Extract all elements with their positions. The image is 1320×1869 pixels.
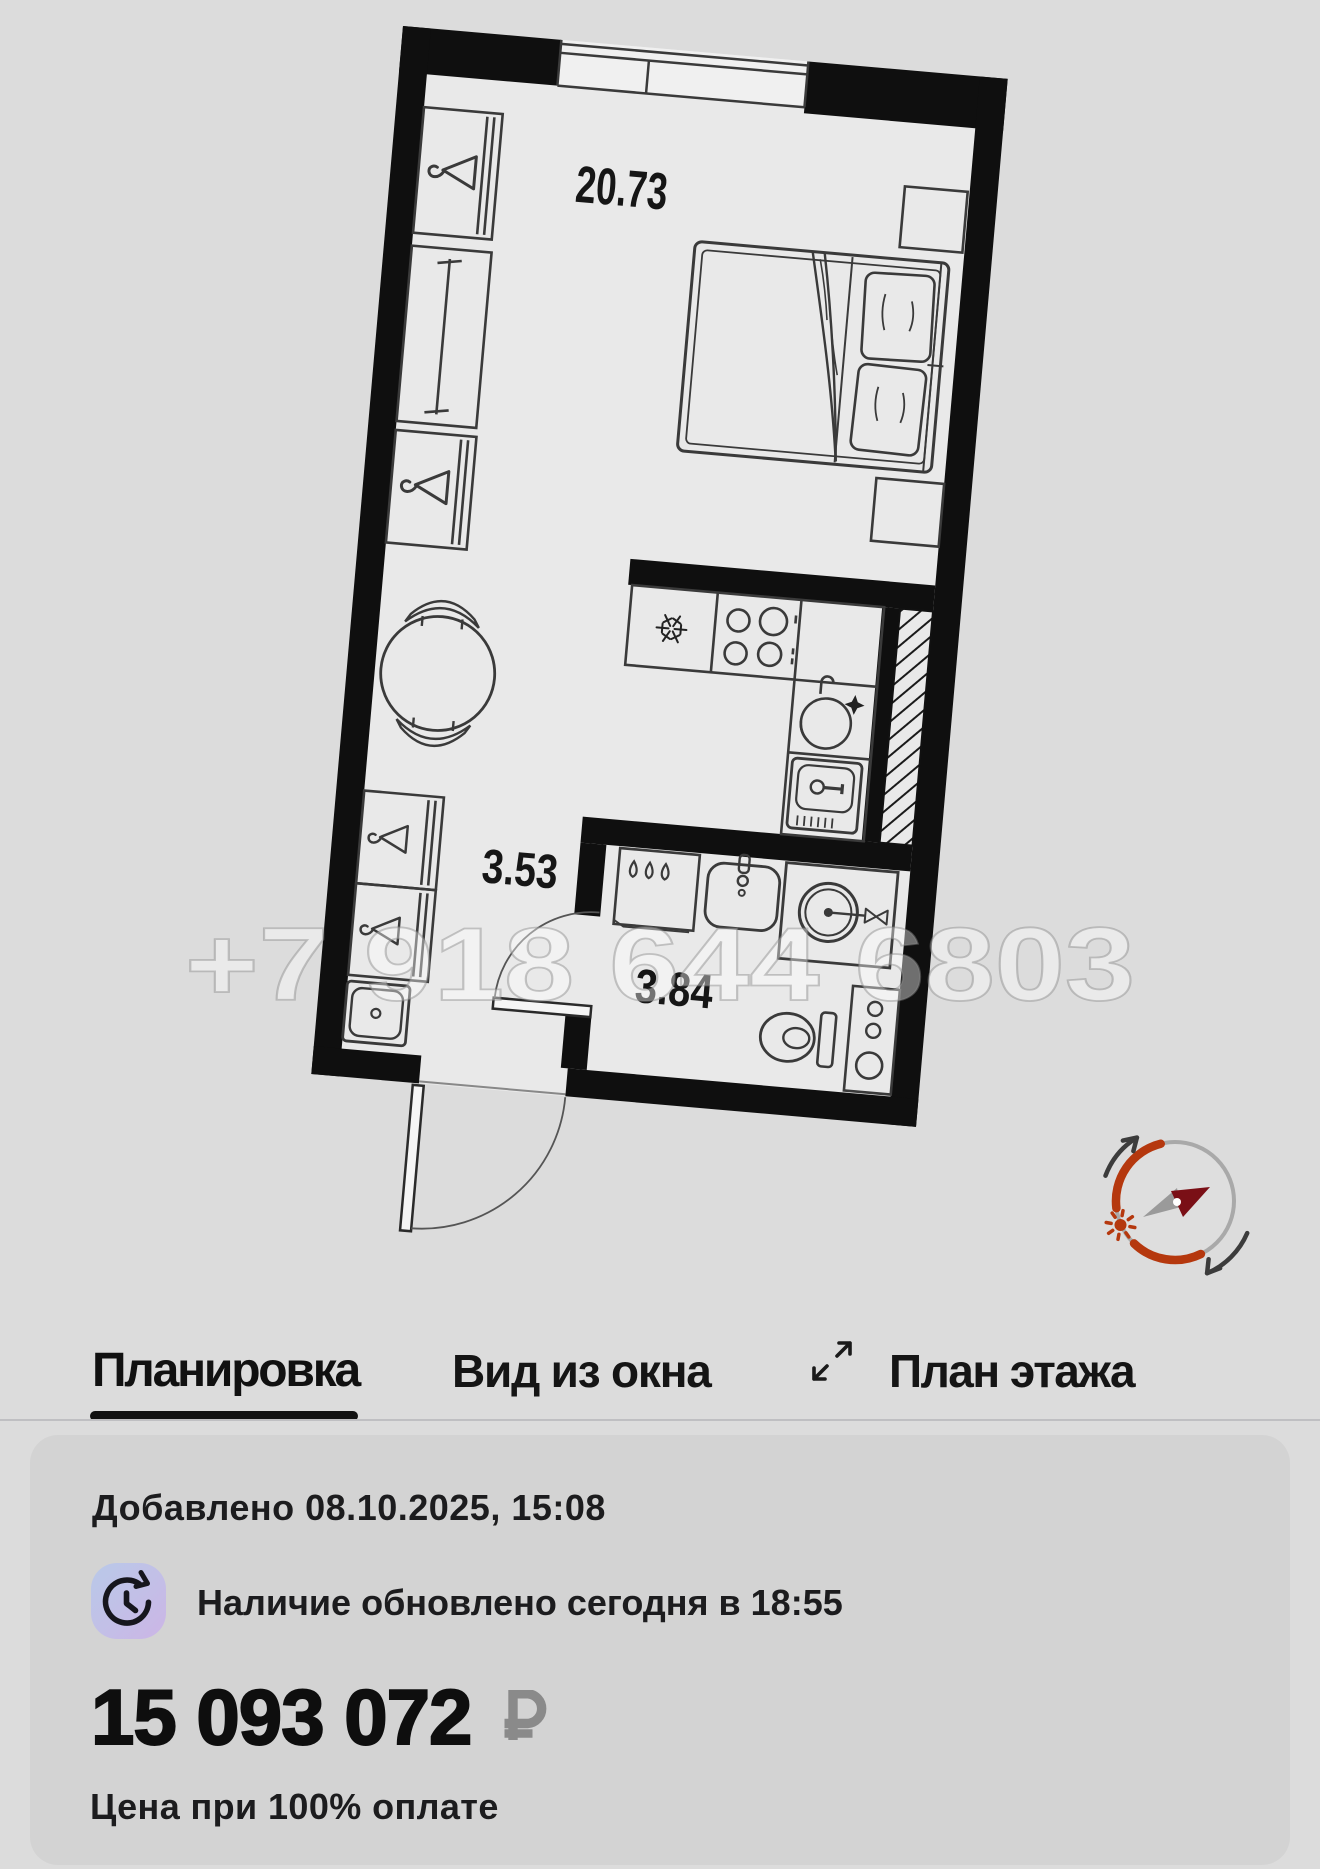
svg-text:20.73: 20.73	[573, 156, 670, 222]
svg-text:3.53: 3.53	[480, 840, 560, 899]
svg-text:+7 918 644 6803: +7 918 644 6803	[185, 907, 1135, 1023]
